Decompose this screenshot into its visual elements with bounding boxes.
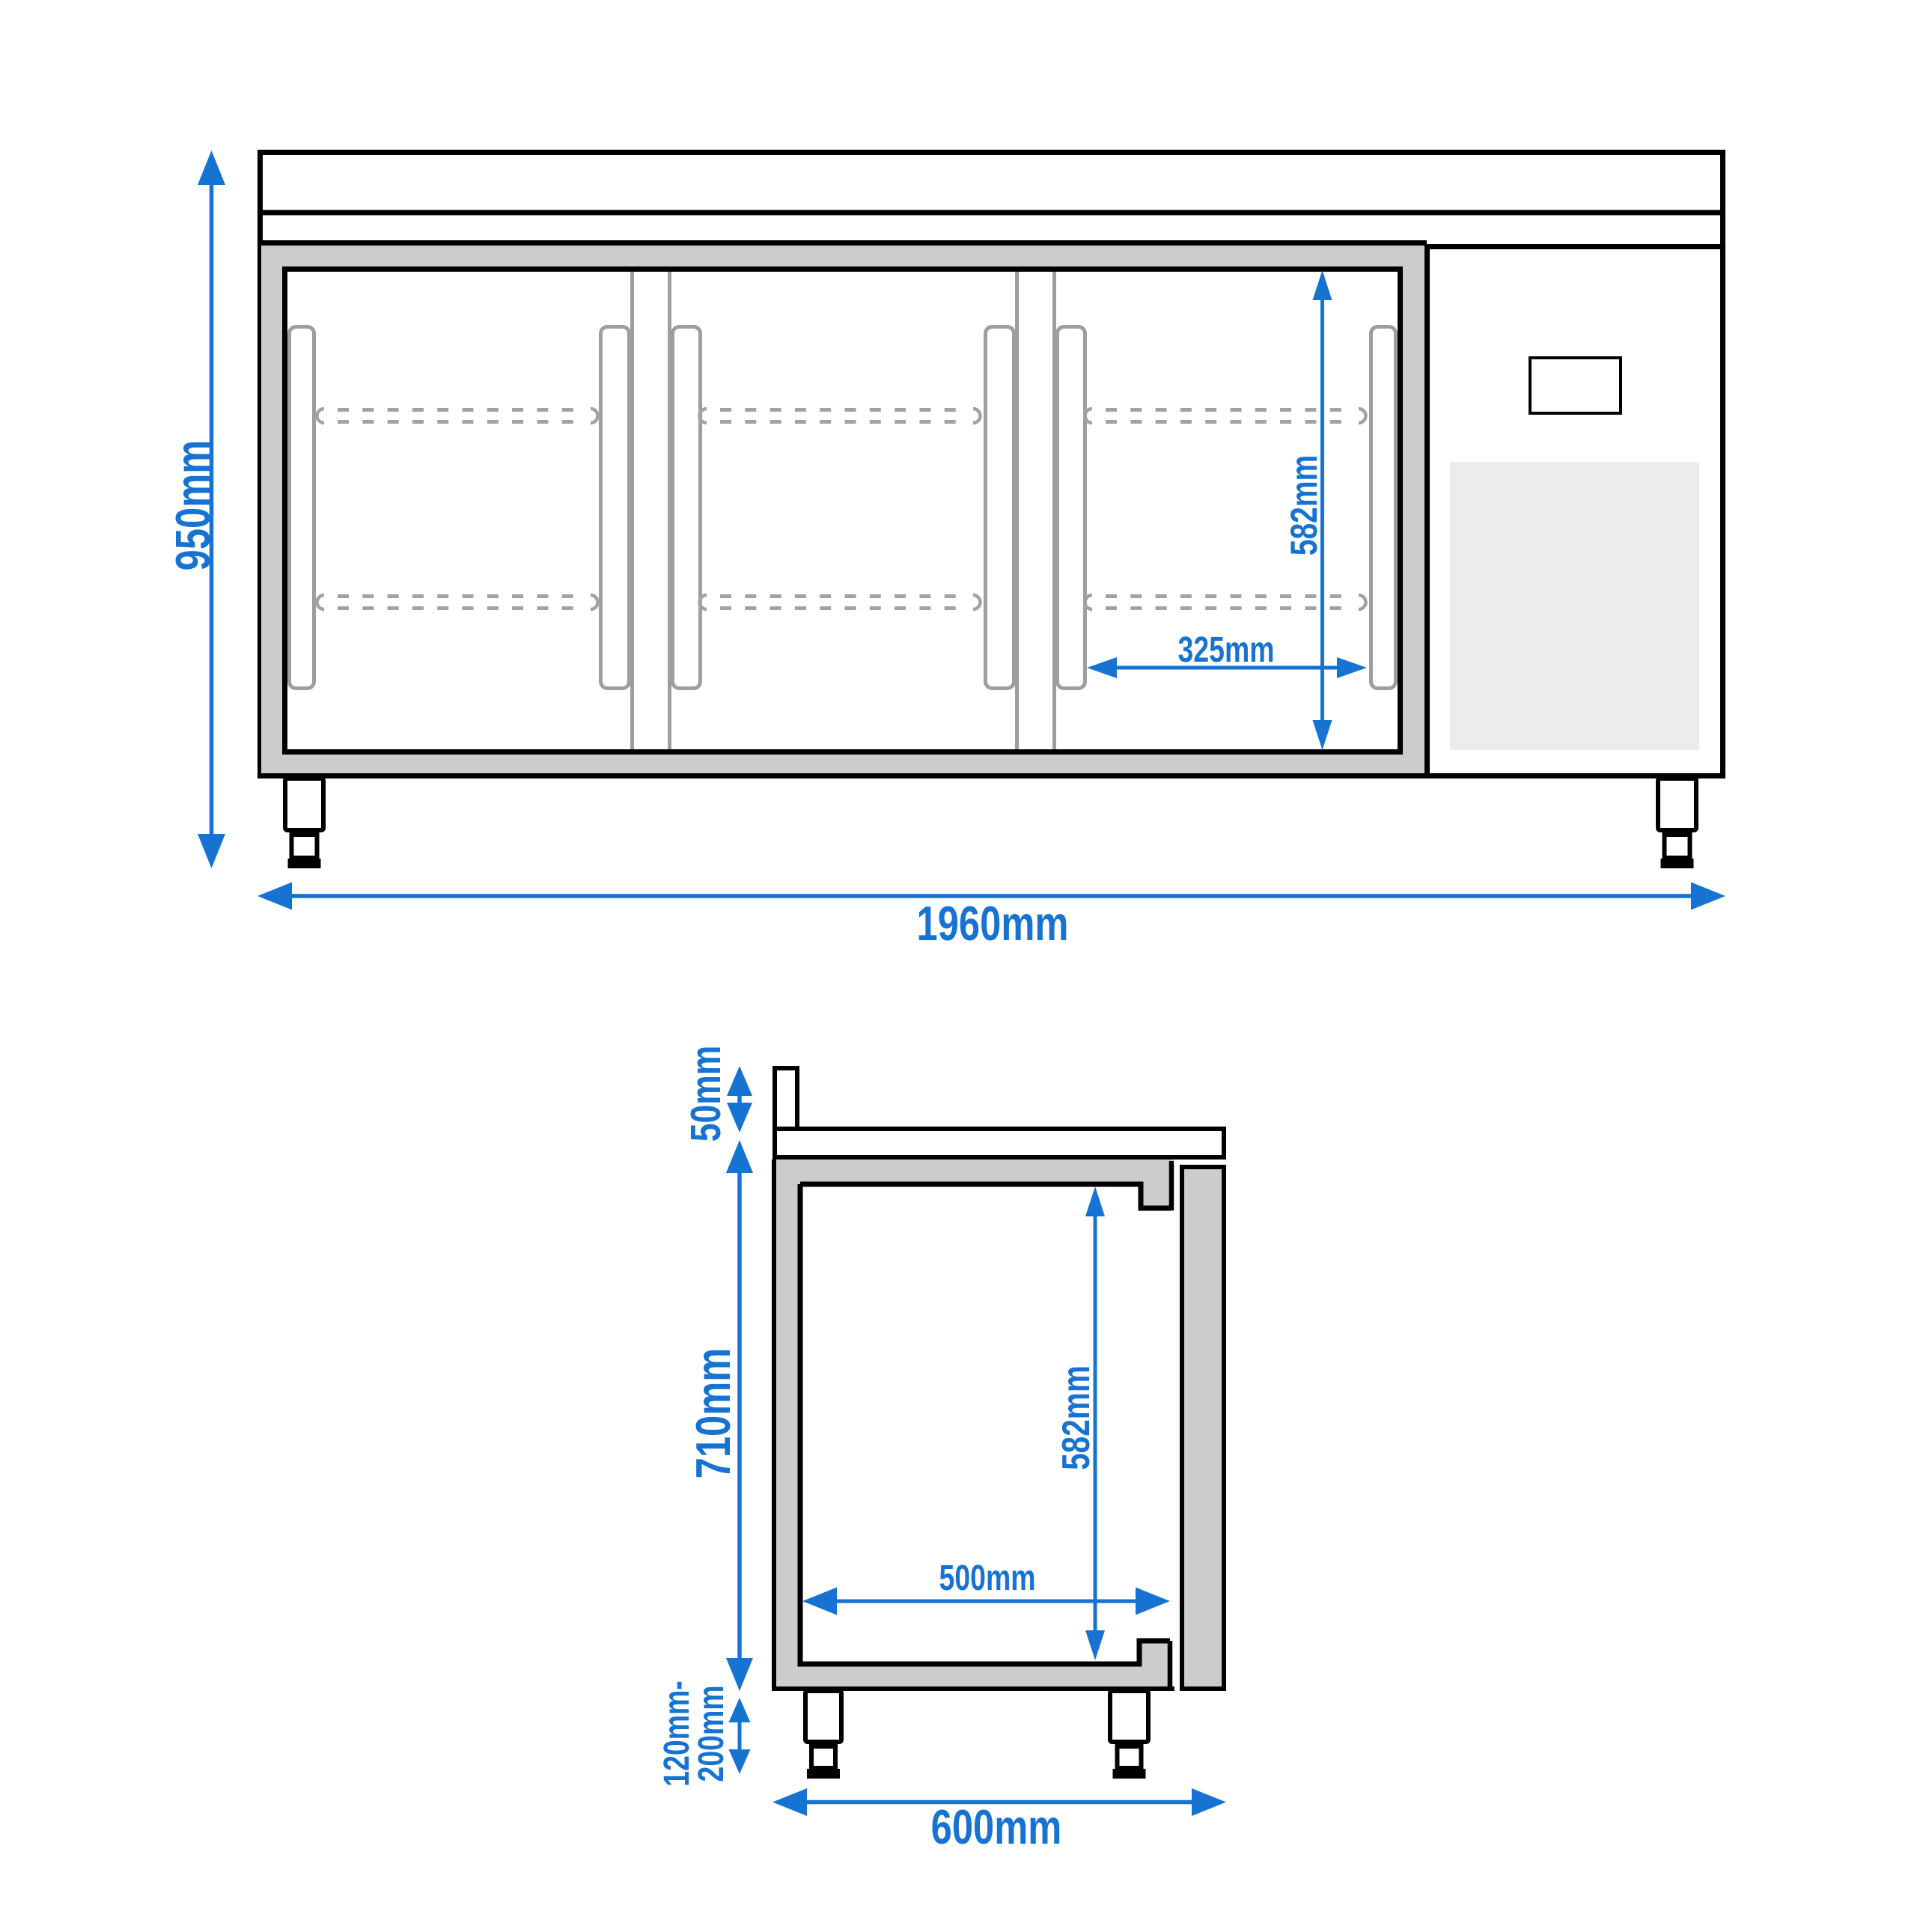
svg-text:325mm: 325mm [1177, 630, 1274, 671]
svg-text:500mm: 500mm [939, 1558, 1035, 1599]
svg-text:582mm: 582mm [1282, 455, 1325, 555]
svg-text:710mm: 710mm [686, 1348, 740, 1479]
svg-text:1960mm: 1960mm [917, 897, 1069, 951]
svg-text:50mm: 50mm [682, 1046, 730, 1142]
svg-text:950mm: 950mm [166, 440, 220, 571]
svg-text:600mm: 600mm [931, 1800, 1062, 1854]
svg-text:582mm: 582mm [1054, 1365, 1097, 1470]
svg-text:200mm: 200mm [692, 1685, 732, 1782]
